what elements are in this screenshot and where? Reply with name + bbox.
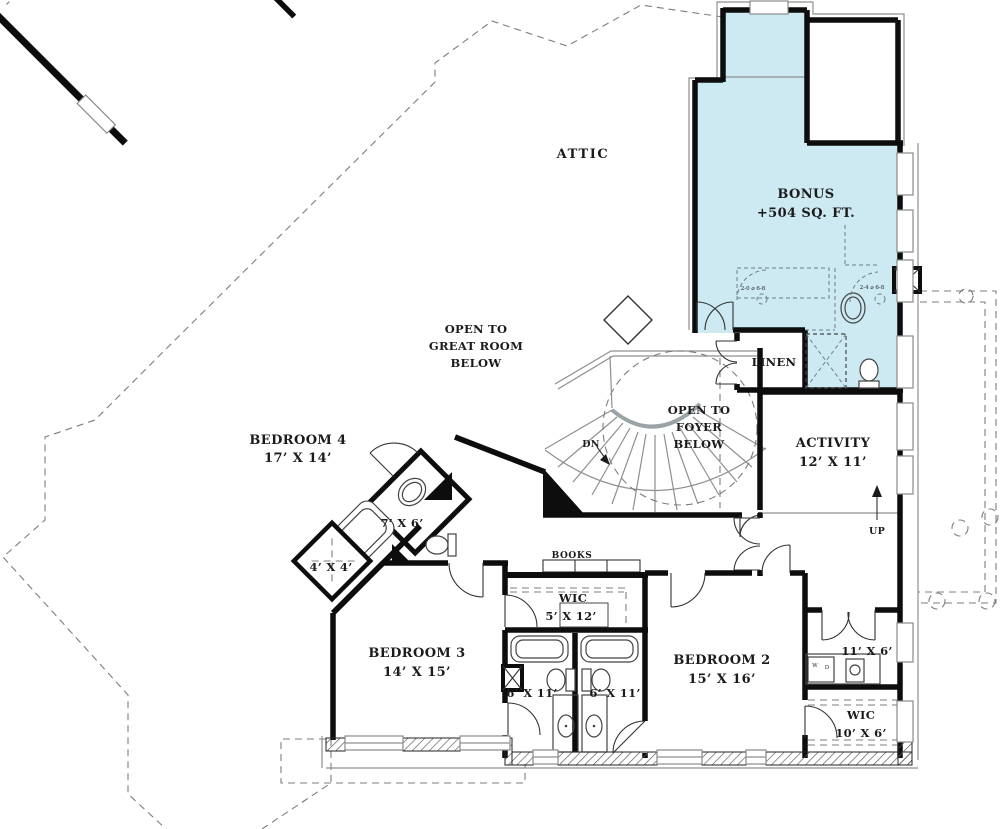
- right-wall-windows: [897, 153, 913, 742]
- open-foyer-label-3: BELOW: [673, 437, 725, 451]
- diagonal-wing: [0, 0, 451, 193]
- bedroom2-walls: [645, 545, 805, 758]
- bonus-label: BONUS: [777, 187, 834, 202]
- right-deck-outline: [918, 289, 998, 609]
- bedroom4-label: BEDROOM 4: [249, 433, 346, 448]
- open-great-room-label-3: BELOW: [450, 356, 502, 370]
- washer-label: W: [812, 663, 818, 669]
- floor-plan-canvas: ATTIC BONUS +504 SQ. FT. OPEN TO GREAT R…: [0, 0, 1000, 829]
- hall-bath-dims: 7’ X 6’: [380, 516, 423, 530]
- closet-4x4-dims: 4’ X 4’: [309, 560, 352, 574]
- bedroom3-dims: 14’ X 15’: [383, 665, 451, 680]
- open-great-room-label-1: OPEN TO: [445, 322, 508, 336]
- stair-up-label: UP: [869, 526, 885, 537]
- activity-label: ACTIVITY: [795, 436, 871, 451]
- bedroom4-dims: 17’ X 14’: [264, 451, 332, 466]
- open-foyer-label-2: FOYER: [676, 420, 722, 434]
- bedroom2-label: BEDROOM 2: [673, 653, 770, 668]
- laundry-wic2-walls: [805, 610, 900, 745]
- laundry-dims: 11’ X 6’: [841, 644, 892, 658]
- bonus-area-label: +504 SQ. FT.: [757, 206, 855, 221]
- stair-dn-label: DN: [582, 439, 600, 450]
- linen-label: LINEN: [752, 355, 797, 369]
- bedroom2-dims: 15’ X 16’: [688, 672, 756, 687]
- attic-label: ATTIC: [556, 147, 610, 162]
- books-label: BOOKS: [552, 551, 593, 561]
- wic1-dims: 5’ X 12’: [545, 609, 596, 623]
- books-wic-baths-walls: [503, 560, 648, 758]
- bath-right-dims: 6’ X 11’: [589, 686, 640, 700]
- door-callout-b: 2-4 ⌀ 6-8: [860, 285, 885, 291]
- bath-left-dims: 6’ X 11’: [506, 686, 557, 700]
- door-callout-a: 2-0 ⌀ 6-8: [741, 286, 766, 292]
- dryer-label: D: [825, 665, 830, 671]
- activity-dims: 12’ X 11’: [799, 455, 867, 470]
- open-foyer-label-1: OPEN TO: [668, 403, 731, 417]
- bedroom3-label: BEDROOM 3: [368, 646, 465, 661]
- wic2-label: WIC: [846, 708, 875, 722]
- wic2-dims: 10’ X 6’: [835, 726, 886, 740]
- curved-staircase: [545, 351, 766, 512]
- floor-plan-drawing: ATTIC BONUS +504 SQ. FT. OPEN TO GREAT R…: [0, 0, 1000, 829]
- open-great-room-label-2: GREAT ROOM: [429, 339, 523, 353]
- hall-bath-and-closet: [294, 437, 585, 613]
